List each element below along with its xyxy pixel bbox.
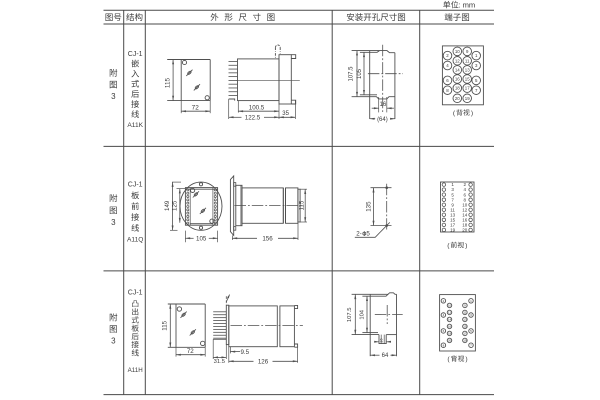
svg-text:11: 11 [465, 58, 470, 63]
svg-text:17: 17 [463, 332, 467, 336]
svg-text:105: 105 [196, 236, 207, 243]
svg-text:20: 20 [462, 227, 468, 232]
svg-text:mm: mm [463, 0, 476, 9]
svg-text:156: 156 [262, 236, 273, 243]
svg-text:115: 115 [299, 200, 306, 210]
svg-text:16: 16 [380, 102, 387, 108]
svg-text:19: 19 [465, 96, 470, 101]
svg-text:17: 17 [465, 86, 470, 91]
svg-text:107.5: 107.5 [347, 308, 353, 323]
svg-text:125: 125 [171, 200, 178, 211]
svg-text:115: 115 [164, 77, 171, 88]
svg-text:3: 3 [111, 336, 116, 345]
svg-text:16: 16 [379, 338, 384, 343]
svg-text:): ) [465, 356, 467, 363]
svg-text::: : [458, 0, 460, 9]
svg-text:): ) [465, 242, 467, 249]
svg-text:13: 13 [463, 318, 467, 322]
svg-text:CJ-1: CJ-1 [128, 182, 143, 189]
svg-text:64: 64 [382, 353, 389, 359]
svg-text:15: 15 [465, 77, 470, 82]
svg-text:10: 10 [448, 304, 452, 308]
svg-text:72: 72 [187, 348, 194, 355]
svg-text:12: 12 [455, 58, 460, 63]
svg-text:72: 72 [192, 105, 200, 112]
svg-text:): ) [471, 110, 473, 117]
svg-text:10: 10 [455, 49, 460, 54]
svg-text:18: 18 [455, 86, 460, 91]
svg-text:19: 19 [450, 227, 456, 232]
svg-text:3: 3 [111, 92, 116, 101]
svg-text:CJ-1: CJ-1 [128, 51, 143, 58]
svg-text:9.5: 9.5 [240, 349, 249, 356]
svg-text:A11H: A11H [128, 367, 143, 374]
svg-text:(64): (64) [377, 117, 388, 123]
svg-text:122.5: 122.5 [245, 114, 261, 121]
svg-text:A11K: A11K [127, 122, 143, 129]
svg-text:14: 14 [455, 68, 460, 73]
svg-text:115: 115 [161, 320, 168, 330]
svg-text:14: 14 [448, 318, 452, 322]
svg-text:3: 3 [111, 218, 116, 227]
svg-text:31.5: 31.5 [214, 359, 225, 365]
svg-text:A11Q: A11Q [127, 237, 143, 244]
svg-text:11: 11 [463, 311, 466, 315]
svg-text:2-: 2- [356, 231, 362, 238]
svg-text:20: 20 [448, 339, 452, 343]
svg-text:135: 135 [365, 201, 372, 212]
svg-text:16: 16 [455, 77, 460, 82]
svg-text:18: 18 [448, 332, 452, 336]
svg-text:20: 20 [455, 96, 460, 101]
svg-text:35: 35 [282, 111, 289, 117]
svg-text:CJ-1: CJ-1 [128, 290, 143, 297]
svg-text:15: 15 [463, 325, 467, 329]
svg-text:126: 126 [258, 359, 269, 366]
svg-text:107.5: 107.5 [348, 66, 354, 82]
svg-text:19: 19 [463, 339, 467, 343]
svg-text:16: 16 [448, 325, 452, 329]
svg-text:100.5: 100.5 [249, 105, 265, 112]
svg-text:149: 149 [164, 200, 171, 211]
svg-text:104: 104 [360, 309, 366, 319]
svg-text:5: 5 [366, 231, 370, 238]
svg-text:13: 13 [465, 68, 470, 73]
svg-text:12: 12 [448, 311, 452, 315]
svg-text:105: 105 [357, 68, 363, 79]
